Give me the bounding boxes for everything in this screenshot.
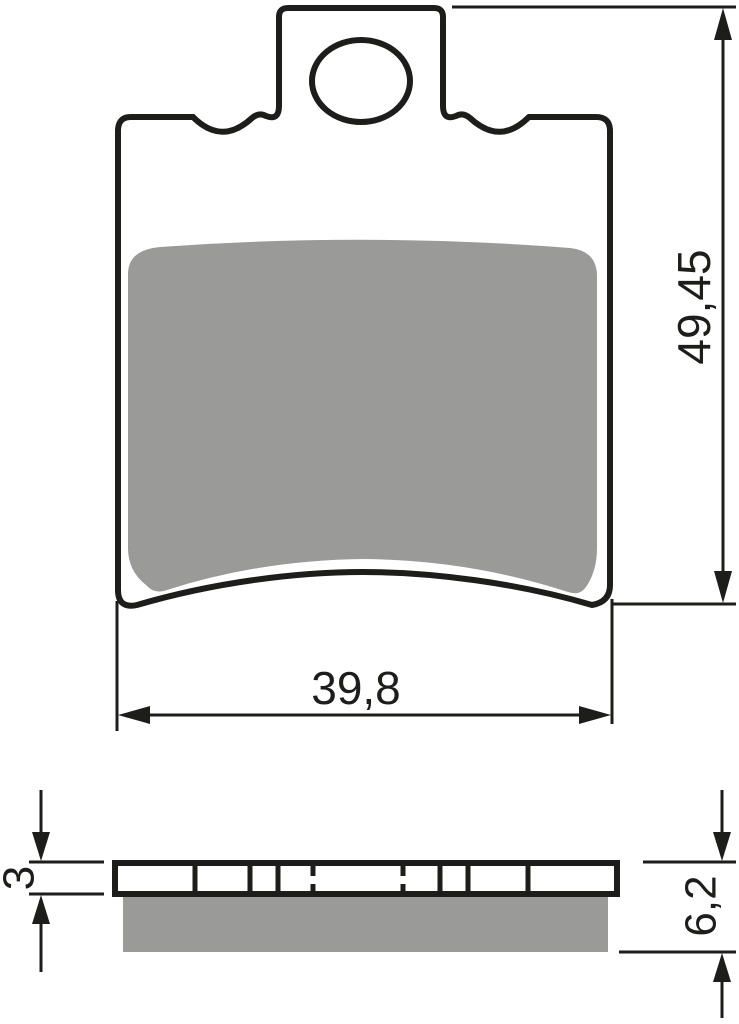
arrow-down	[714, 571, 732, 603]
friction-pad-front	[128, 240, 597, 593]
side-view: 3 6,2	[0, 790, 736, 1018]
total-thickness-dimension: 6,2	[619, 790, 736, 1018]
arrow-left	[118, 706, 150, 724]
arrow-right	[579, 706, 611, 724]
brake-pad-technical-drawing: 49,45 39,8	[0, 0, 739, 1024]
arrow-down	[713, 832, 731, 861]
front-view: 49,45 39,8	[117, 7, 736, 731]
arrow-up	[714, 8, 732, 40]
total-thickness-label: 6,2	[677, 875, 726, 936]
drawing-canvas: 49,45 39,8	[0, 0, 739, 1024]
backing-plate-side	[115, 863, 617, 894]
arrow-up	[713, 953, 731, 982]
plate-thickness-dimension: 3	[0, 790, 104, 972]
width-dimension: 39,8	[117, 599, 612, 731]
mounting-hole	[312, 40, 410, 122]
plate-thickness-label: 3	[0, 866, 44, 890]
arrow-up	[32, 895, 50, 924]
friction-pad-side	[123, 897, 608, 952]
height-dimension-label: 49,45	[668, 249, 720, 364]
width-dimension-label: 39,8	[311, 662, 401, 714]
arrow-down	[32, 832, 50, 861]
